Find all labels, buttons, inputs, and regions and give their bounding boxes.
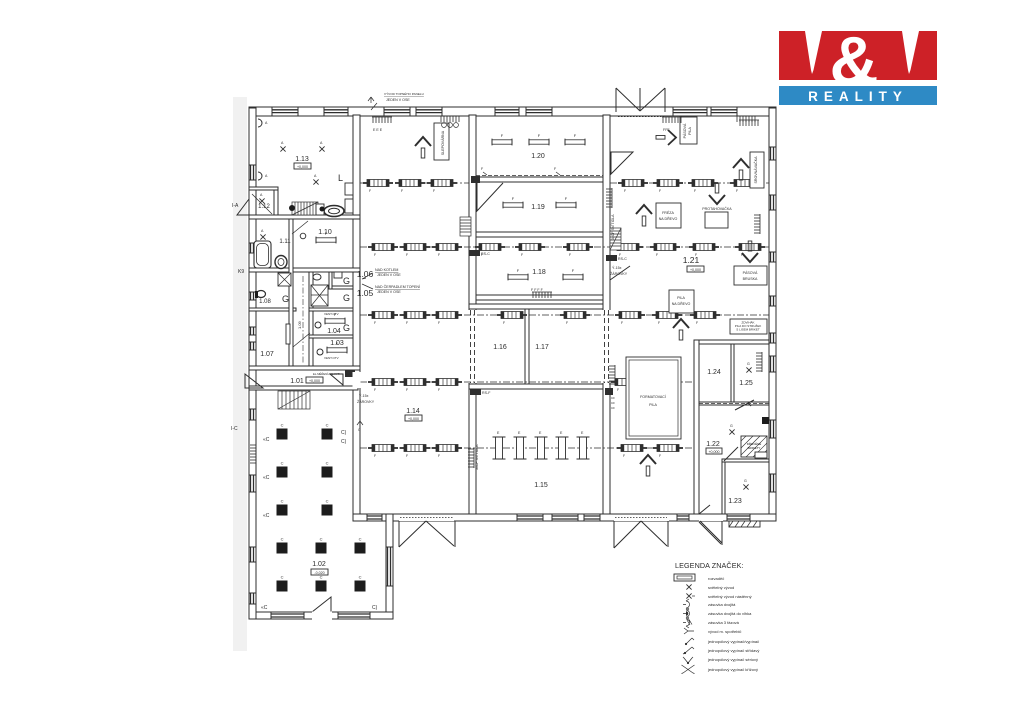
svg-text:Ý-15x: Ý-15x [359, 394, 369, 398]
svg-text:1.07: 1.07 [260, 351, 274, 358]
svg-text:rozvaděč: rozvaděč [708, 576, 724, 581]
svg-text:G: G [744, 479, 747, 483]
svg-text:1.22: 1.22 [706, 441, 720, 448]
svg-text:BRUSKA: BRUSKA [743, 277, 758, 281]
svg-text:G: G [730, 424, 733, 428]
svg-text:PÁSOVÁ: PÁSOVÁ [743, 271, 758, 275]
svg-text:SROVNÁVAČKA: SROVNÁVAČKA [753, 156, 758, 184]
svg-text:FRÉZA: FRÉZA [662, 210, 674, 215]
svg-text:E E E: E E E [373, 128, 383, 132]
svg-text:1.14: 1.14 [406, 408, 420, 415]
svg-text:+0,000: +0,000 [297, 165, 308, 169]
svg-text:S LISEM BRIKET: S LISEM BRIKET [736, 328, 760, 332]
svg-text:CF: CF [611, 401, 615, 405]
svg-text:RS-F: RS-F [482, 391, 491, 395]
svg-text:1.08: 1.08 [259, 299, 271, 305]
svg-text:1.18: 1.18 [532, 269, 546, 276]
svg-text:ŽÁROVKY: ŽÁROVKY [610, 271, 628, 276]
svg-text:CF: CF [611, 406, 615, 410]
svg-text:1.11: 1.11 [279, 239, 291, 245]
svg-text:G: G [343, 323, 350, 333]
svg-text:1.12: 1.12 [258, 204, 270, 210]
svg-text:PILA: PILA [688, 127, 692, 135]
svg-text:1.09: 1.09 [297, 320, 302, 329]
svg-text:PILA: PILA [649, 403, 657, 407]
svg-text:PÁSOVÁ: PÁSOVÁ [683, 123, 687, 138]
svg-text:1.10: 1.10 [318, 229, 332, 236]
svg-text:C): C) [341, 439, 347, 445]
svg-text:jednopólový vypínač sériový: jednopólový vypínač sériový [707, 657, 758, 662]
svg-text:světelný vývod nástěnný: světelný vývod nástěnný [708, 594, 752, 599]
svg-text:1.04: 1.04 [327, 328, 341, 335]
svg-text:zásuvka dvojitá do vlhka: zásuvka dvojitá do vlhka [708, 611, 752, 616]
svg-text:RS-C: RS-C [481, 252, 490, 256]
svg-text:«C: «C [263, 437, 270, 443]
svg-text:C): C) [372, 605, 378, 611]
svg-text:NA DŘEVO: NA DŘEVO [672, 301, 691, 306]
svg-text:1.24: 1.24 [707, 369, 721, 376]
svg-text:-0,020: -0,020 [314, 571, 324, 575]
svg-text:3xCF SVÍTIDLA: 3xCF SVÍTIDLA [475, 444, 479, 470]
svg-text:1.15: 1.15 [534, 482, 548, 489]
svg-text:«C: «C [263, 475, 270, 481]
svg-text:1.02: 1.02 [312, 561, 326, 568]
svg-text:1.17: 1.17 [535, 344, 549, 351]
svg-text:1.16: 1.16 [493, 344, 507, 351]
svg-text:VÝVOD TOPNÉHO PANELU: VÝVOD TOPNÉHO PANELU [384, 91, 424, 96]
svg-text:JEDEN V OSE: JEDEN V OSE [377, 273, 401, 277]
svg-text:zásuvka 3 fázová: zásuvka 3 fázová [708, 620, 740, 625]
svg-text:VENT.OTV: VENT.OTV [324, 356, 339, 360]
svg-text:FORMATOVACÍ: FORMATOVACÍ [640, 395, 666, 399]
svg-text:jednopólový vypínač střídavý: jednopólový vypínač střídavý [707, 648, 759, 653]
svg-text:světelný vývod: světelný vývod [708, 585, 734, 590]
svg-text:1.19: 1.19 [531, 204, 545, 211]
svg-text:1.20: 1.20 [531, 153, 545, 160]
svg-text:+0,000: +0,000 [408, 417, 419, 421]
svg-text:EL.MĚŘENÍ+HL.VYP.: EL.MĚŘENÍ+HL.VYP. [313, 371, 340, 376]
svg-text:«C: «C [263, 513, 270, 519]
svg-text:SLEPOVÁRNA: SLEPOVÁRNA [441, 130, 445, 155]
svg-text:C): C) [341, 430, 347, 436]
svg-text:3xCF SVÍTIDLA: 3xCF SVÍTIDLA [611, 214, 615, 240]
svg-text:1.01: 1.01 [290, 378, 304, 385]
svg-text:1.05: 1.05 [357, 288, 374, 298]
svg-text:G: G [343, 293, 350, 303]
svg-text:jednopólový vypínač křížový: jednopólový vypínač křížový [707, 667, 758, 672]
svg-text:PROTAHOVAČKA: PROTAHOVAČKA [702, 206, 732, 211]
svg-text:LEGENDA ZNAČEK:: LEGENDA ZNAČEK: [675, 561, 744, 570]
svg-text:+0,000: +0,000 [690, 268, 701, 272]
svg-text:1.21: 1.21 [683, 255, 700, 265]
svg-text:I-A: I-A [232, 203, 239, 209]
svg-text:1.03: 1.03 [330, 340, 344, 347]
svg-text:1.25: 1.25 [739, 380, 753, 387]
svg-text:vývod m. spotřebič: vývod m. spotřebič [708, 629, 741, 634]
svg-text:PILA: PILA [677, 296, 685, 300]
svg-text:C: C [358, 428, 361, 432]
svg-text:BRIKETY: BRIKETY [748, 446, 761, 450]
svg-text:FFF: FFF [663, 128, 670, 132]
svg-text:Ý-15x: Ý-15x [612, 266, 622, 270]
svg-text:RS-C: RS-C [618, 257, 627, 261]
svg-text:1.13: 1.13 [295, 156, 309, 163]
svg-text:F F F F: F F F F [531, 288, 544, 292]
svg-text:L: L [338, 173, 343, 183]
svg-text:NAD KOTLEM: NAD KOTLEM [375, 268, 398, 272]
svg-text:+0,000: +0,000 [309, 379, 320, 383]
svg-text:1.23: 1.23 [728, 498, 742, 505]
svg-text:jednopólový vypínač/vypínač: jednopólový vypínač/vypínač [707, 639, 759, 644]
svg-text:CF: CF [611, 396, 615, 400]
svg-text:NA DŘEVO: NA DŘEVO [659, 216, 678, 221]
svg-text:I-C: I-C [231, 426, 238, 432]
svg-text:zásuvka dvojitá: zásuvka dvojitá [708, 602, 736, 607]
svg-text:K9: K9 [238, 269, 244, 275]
svg-text:VENT.OTV: VENT.OTV [324, 312, 339, 316]
svg-text:JEDEN V OSE: JEDEN V OSE [377, 290, 401, 294]
svg-text:«C: «C [261, 605, 268, 611]
svg-text:JEDEN V OSE: JEDEN V OSE [386, 98, 410, 102]
svg-text:NAD ČERPADLEM TOPENÍ: NAD ČERPADLEM TOPENÍ [375, 284, 420, 289]
svg-text:REALITY: REALITY [808, 89, 908, 104]
svg-text:+0,000: +0,000 [708, 450, 719, 454]
svg-text:G: G [747, 362, 750, 366]
svg-text:G: G [282, 294, 289, 304]
svg-text:ŽÁROVKY: ŽÁROVKY [357, 399, 375, 404]
svg-text:G: G [343, 276, 350, 286]
